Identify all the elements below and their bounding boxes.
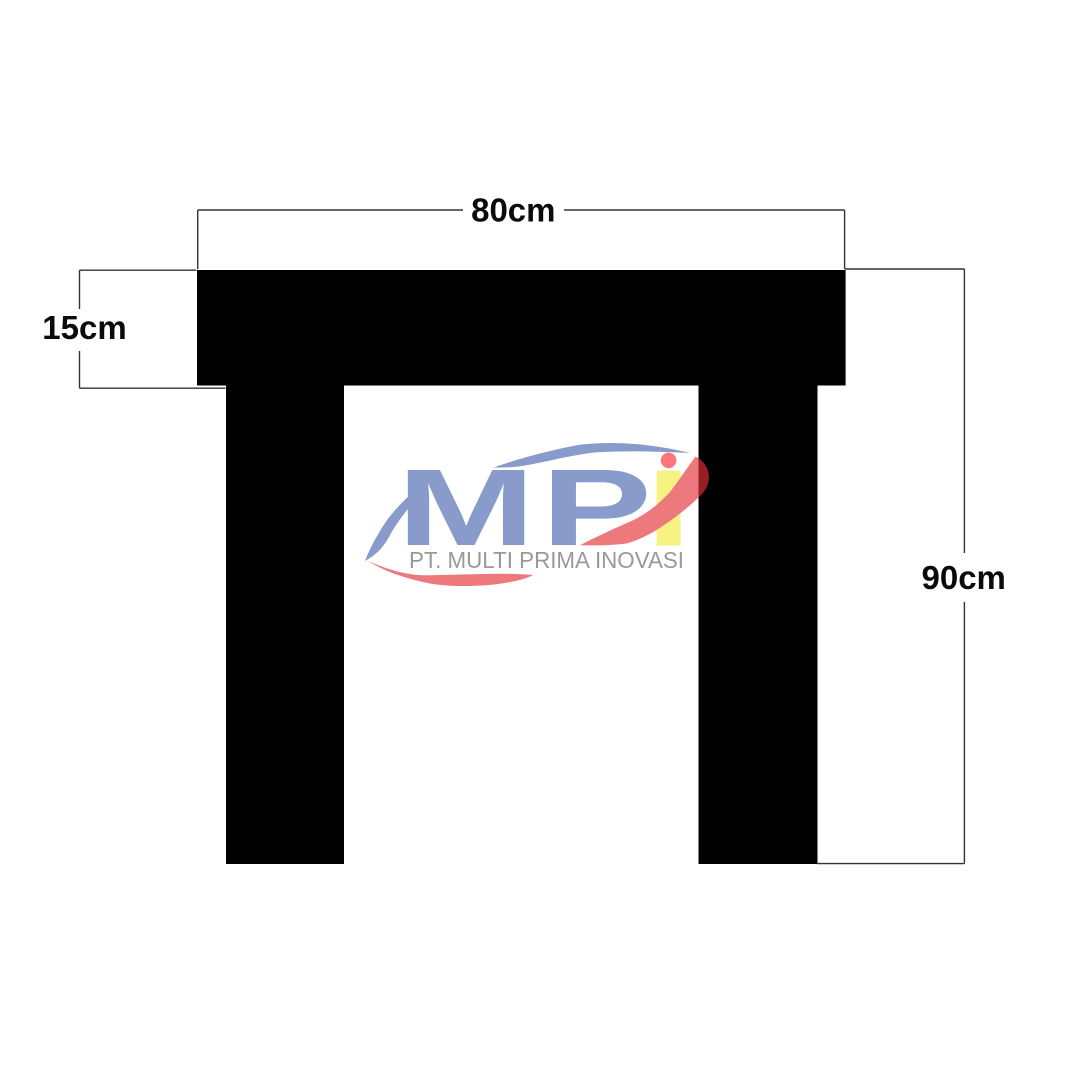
svg-text:80cm: 80cm: [471, 192, 555, 229]
svg-text:PT. MULTI PRIMA INOVASI: PT. MULTI PRIMA INOVASI: [409, 547, 684, 573]
svg-text:15cm: 15cm: [42, 309, 126, 346]
svg-text:90cm: 90cm: [921, 559, 1005, 596]
